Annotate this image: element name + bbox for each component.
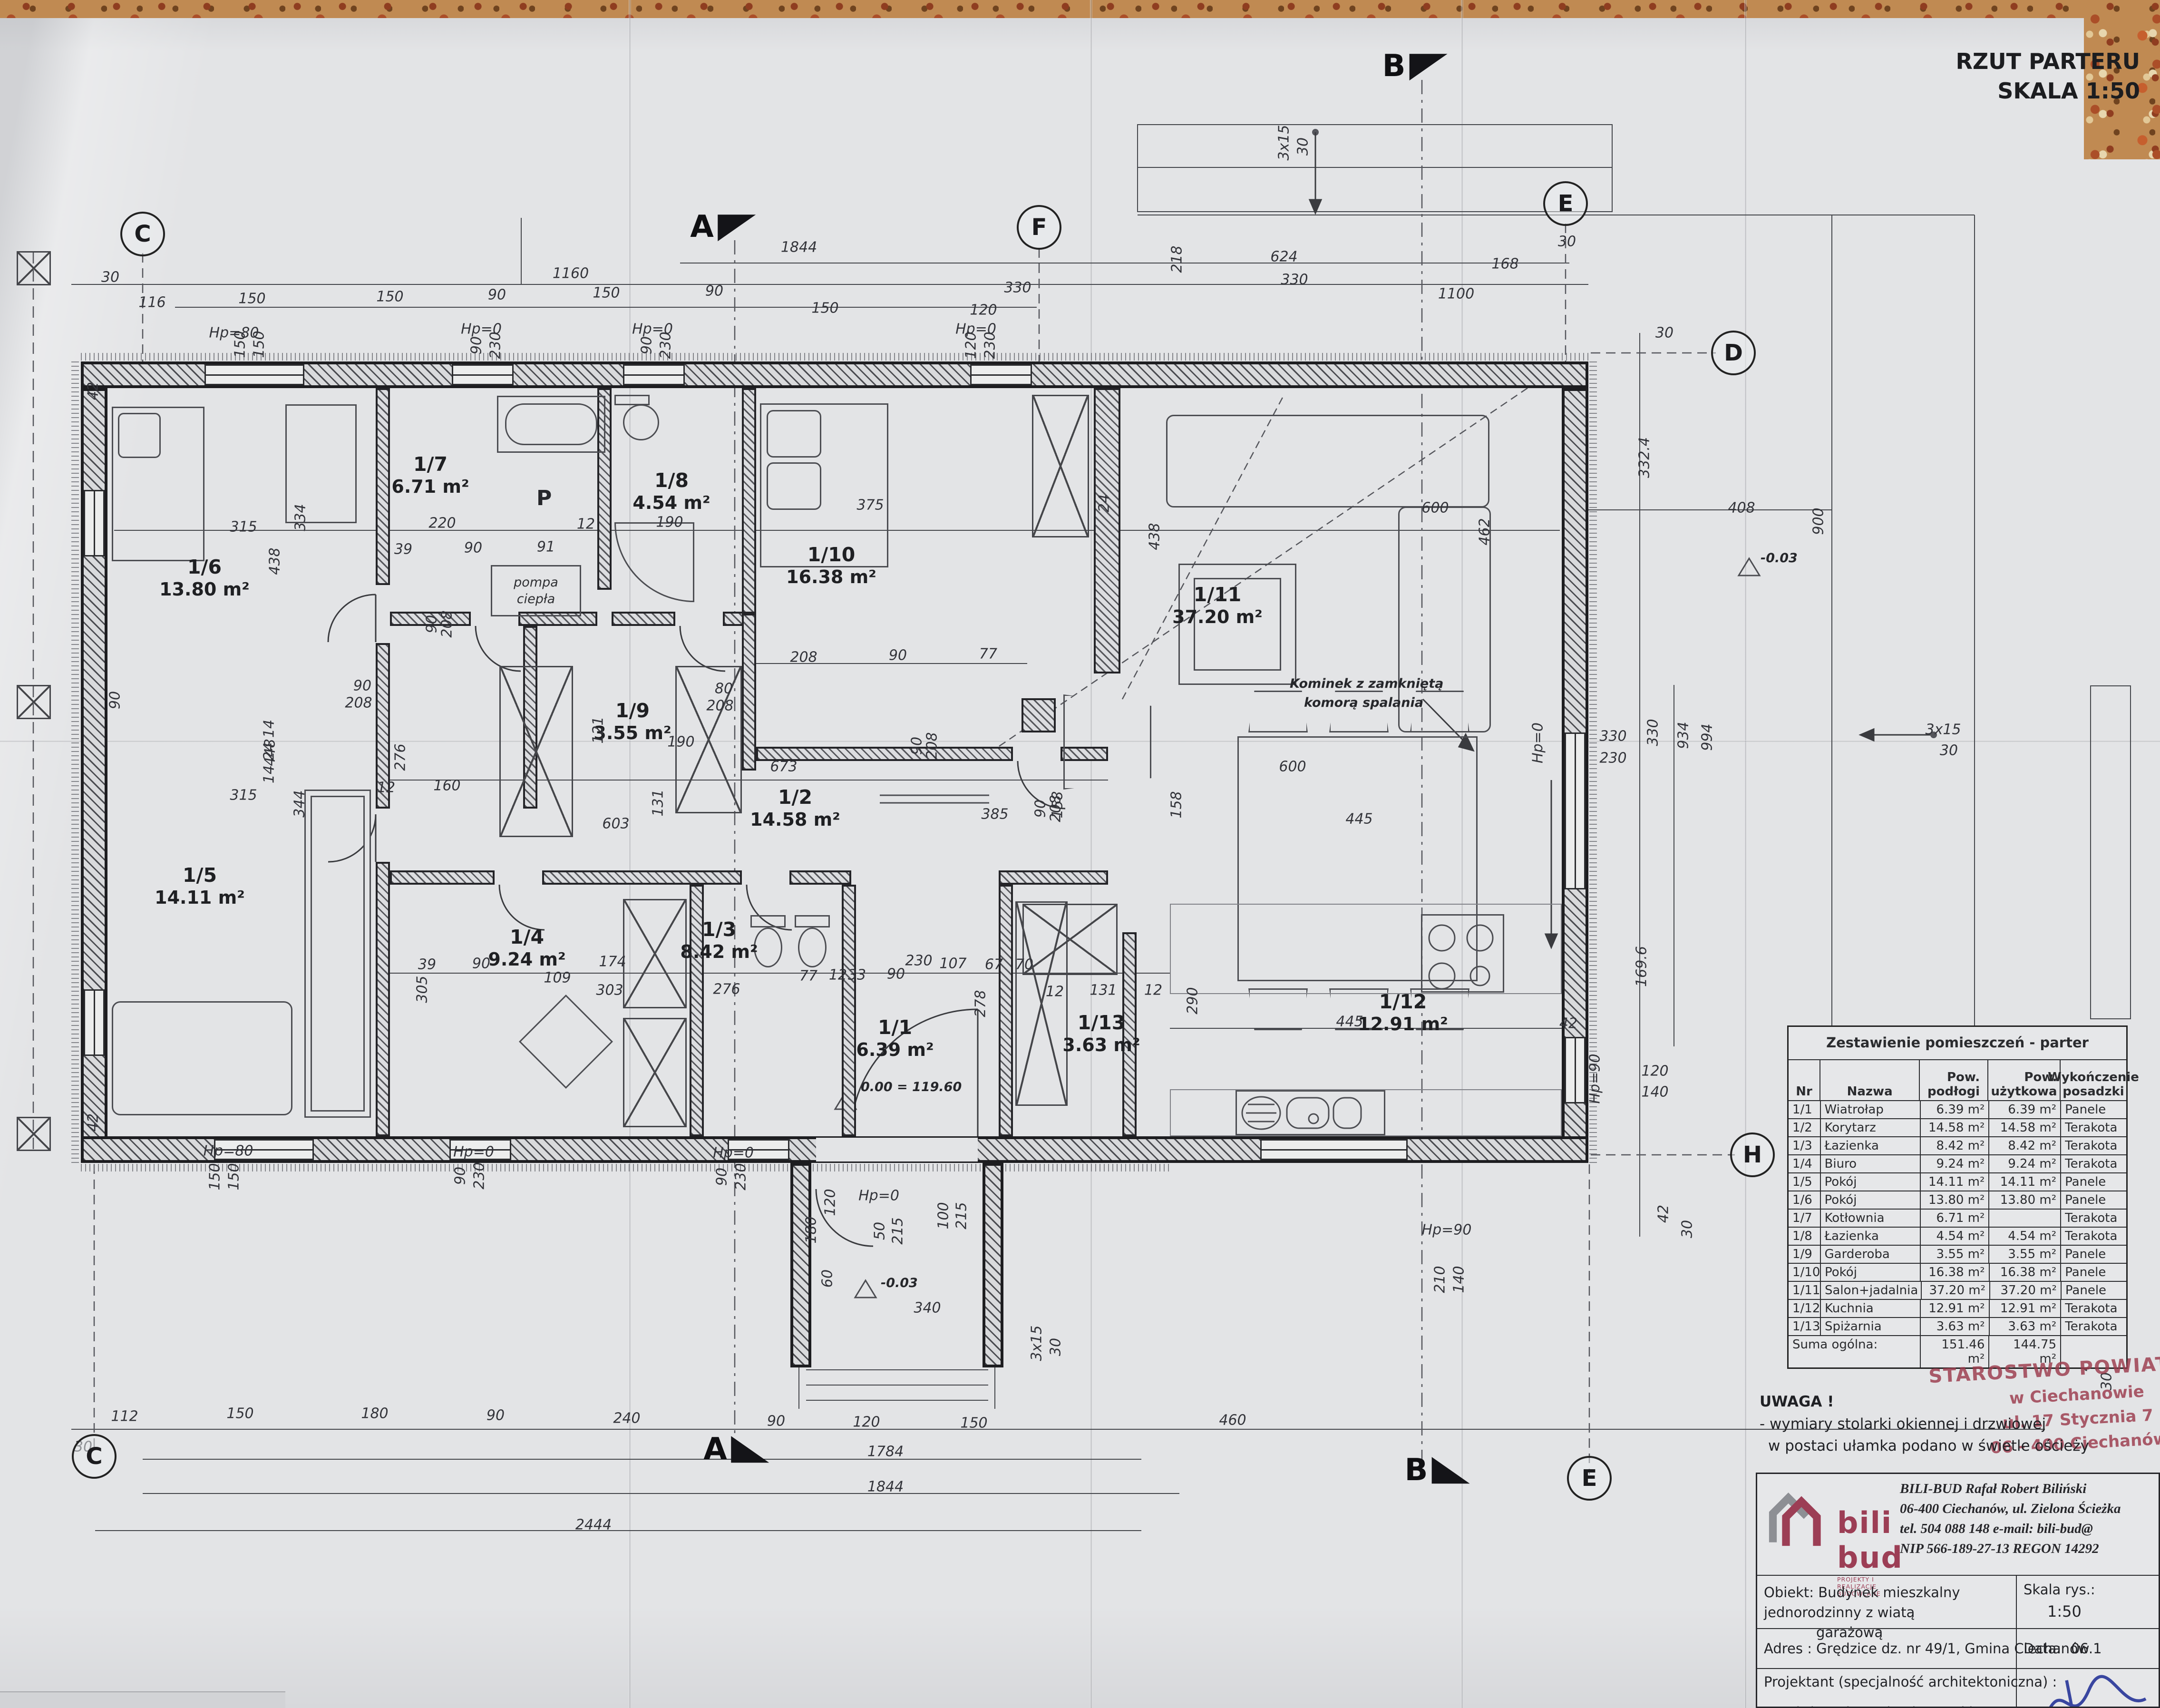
dim-label: 150 bbox=[232, 331, 249, 358]
dim-label: 190 bbox=[656, 514, 683, 531]
dim-label: 3x15 bbox=[1925, 722, 1961, 738]
dim-label: 50 bbox=[872, 1222, 888, 1240]
dim-label: 24 bbox=[261, 742, 278, 761]
company-line4: NIP 566-189-27-13 REGON 14292 bbox=[1900, 1539, 2160, 1559]
dim-label: 30 bbox=[1655, 325, 1674, 342]
projektant-label: Projektant (specjalność architektoniczna… bbox=[1764, 1674, 2057, 1690]
dim-label: 330 bbox=[1281, 272, 1308, 288]
cell-nr: 1/4 bbox=[1789, 1155, 1820, 1172]
dim-label: 2444 bbox=[575, 1517, 612, 1533]
uwaga-title: UWAGA ! bbox=[1760, 1391, 2089, 1413]
dim-label: 121 bbox=[590, 716, 607, 743]
room-number: 1/2 bbox=[750, 786, 840, 809]
axis-letter: E bbox=[1558, 190, 1574, 217]
dim-label: 168 bbox=[1491, 256, 1518, 273]
section-marker: B bbox=[1405, 1457, 1470, 1484]
company-info: BILI-BUD Rafał Robert Biliński 06-400 Ci… bbox=[1900, 1479, 2160, 1559]
room-number: 1/5 bbox=[155, 864, 245, 887]
dim-label: 14 bbox=[261, 765, 278, 783]
axis-marker: H bbox=[1730, 1132, 1775, 1177]
insulation-band bbox=[71, 361, 79, 1163]
window bbox=[452, 364, 514, 385]
dim-label: 33 bbox=[848, 967, 866, 984]
dim-label: 210 bbox=[1432, 1266, 1449, 1293]
tall-wardrobe bbox=[304, 790, 371, 1118]
dim-label: 230 bbox=[982, 332, 999, 359]
carport-post bbox=[17, 251, 51, 285]
dim-label: 90 bbox=[472, 956, 490, 972]
dim-label: 77 bbox=[799, 968, 817, 985]
room-number: 1/6 bbox=[159, 556, 250, 579]
dim-label: 215 bbox=[954, 1202, 970, 1229]
dim-label: 100 bbox=[935, 1202, 952, 1229]
partition bbox=[999, 870, 1108, 885]
dim-label: 90 bbox=[353, 678, 371, 694]
room-area: 13.80 m² bbox=[159, 579, 250, 601]
dim-label: 290 bbox=[1185, 987, 1201, 1014]
room-number: 1/12 bbox=[1358, 990, 1448, 1014]
dim-label: 624 bbox=[1270, 249, 1297, 265]
dim-label: 42 bbox=[1559, 1015, 1577, 1032]
dim-label: 42 bbox=[1655, 1205, 1672, 1223]
dim-label: 150 bbox=[376, 289, 403, 305]
cell-wykonczenie: Terakota bbox=[2060, 1137, 2126, 1154]
sofa bbox=[112, 1001, 292, 1115]
cell-nazwa: Łazienka bbox=[1820, 1137, 1920, 1154]
cell-pow-podlogi: 13.80 m² bbox=[1920, 1191, 1989, 1209]
dim-label: 208 bbox=[439, 610, 456, 637]
dim-label: 150 bbox=[207, 1163, 224, 1190]
dim-label: 120 bbox=[822, 1189, 839, 1216]
dim-label: 150 bbox=[238, 291, 265, 307]
projektant-row: Projektant (specjalność architektoniczna… bbox=[1757, 1668, 2160, 1708]
cell-nazwa: Salon+jadalnia bbox=[1820, 1282, 1921, 1299]
dim-label: 190 bbox=[667, 734, 694, 751]
cell-pow-podlogi: 6.39 m² bbox=[1920, 1101, 1989, 1118]
floor-plan-sheet: RZUT PARTERU SKALA 1:50 bbox=[0, 0, 2160, 1708]
pillow bbox=[767, 462, 821, 510]
uwaga-note: UWAGA ! - wymiary stolarki okiennej i dr… bbox=[1760, 1391, 2089, 1457]
section-marker: B bbox=[1382, 53, 1448, 80]
dim-label: 90 bbox=[1032, 800, 1049, 818]
window bbox=[84, 989, 105, 1056]
dim-label: 116 bbox=[138, 294, 165, 311]
level-mark: -0.03 bbox=[1761, 551, 1798, 566]
cell-wykonczenie: Panele bbox=[2060, 1101, 2126, 1118]
toilet-tank bbox=[795, 915, 830, 927]
dim-label: 600 bbox=[1279, 759, 1306, 775]
cell-nazwa: Łazienka bbox=[1820, 1228, 1920, 1245]
dim-label: 109 bbox=[544, 970, 571, 986]
uwaga-line2: w postaci ułamka podano w świetle oścież… bbox=[1760, 1435, 2089, 1457]
room-table-header: Nr Nazwa Pow. podłogi Pow. użytkowa Wyko… bbox=[1789, 1059, 2126, 1100]
insulation-band bbox=[81, 353, 1588, 361]
section-triangle-icon bbox=[1409, 54, 1447, 80]
dim-label: 12 bbox=[1144, 982, 1162, 999]
dim-label: 1100 bbox=[1438, 286, 1474, 303]
cell-nazwa: Garderoba bbox=[1820, 1246, 1920, 1263]
room-number: 1/1 bbox=[856, 1016, 934, 1039]
level-mark: -0.03 bbox=[881, 1276, 918, 1290]
window bbox=[970, 364, 1032, 385]
axis-marker: D bbox=[1711, 331, 1756, 375]
dim-label: 305 bbox=[414, 976, 431, 1003]
dim-label: 120 bbox=[853, 1414, 880, 1431]
room-number: 1/11 bbox=[1172, 583, 1263, 606]
dim-label: 460 bbox=[1219, 1412, 1246, 1429]
wardrobe bbox=[623, 899, 687, 1008]
axis-marker: E bbox=[1567, 1456, 1612, 1501]
dim-label: Hp=0 bbox=[453, 1144, 494, 1161]
dim-label: 120 bbox=[970, 302, 997, 319]
dim-label: 30 bbox=[1295, 137, 1312, 156]
dim-label: 1844 bbox=[781, 239, 817, 256]
cell-pow-podlogi: 37.20 m² bbox=[1921, 1282, 1989, 1299]
dim-label: 408 bbox=[1728, 500, 1755, 517]
cell-wykonczenie: Terakota bbox=[2060, 1228, 2126, 1245]
section-triangle-icon bbox=[1431, 1457, 1469, 1484]
dim-label: 3x15 bbox=[1029, 1325, 1045, 1361]
dim-label: 90 bbox=[889, 647, 907, 664]
cell-nr: 1/13 bbox=[1789, 1318, 1820, 1335]
chair bbox=[1248, 988, 1308, 1030]
cell-wykonczenie: Panele bbox=[2060, 1264, 2126, 1281]
dim-label: 208 bbox=[706, 698, 733, 714]
dim-label: 42 bbox=[85, 382, 102, 400]
room-area: 6.39 m² bbox=[856, 1039, 934, 1061]
dim-label: 90 bbox=[452, 1167, 469, 1185]
wall-north bbox=[81, 361, 1588, 388]
pantry-shelf bbox=[1022, 904, 1118, 975]
axis-letter: C bbox=[86, 1443, 102, 1470]
dim-label: Hp=0 bbox=[713, 1145, 754, 1161]
paper-crease bbox=[629, 0, 631, 1708]
room-area: 16.38 m² bbox=[786, 566, 876, 588]
heat-pump-box: pompa ciepła bbox=[491, 565, 581, 616]
dim-label: 215 bbox=[890, 1217, 906, 1244]
insulation-band bbox=[1589, 361, 1597, 1163]
dim-label: 150 bbox=[811, 300, 838, 317]
partition bbox=[542, 870, 742, 885]
dim-label: 230 bbox=[658, 332, 674, 359]
room-area: 12.91 m² bbox=[1358, 1014, 1448, 1035]
wardrobe bbox=[623, 1018, 687, 1127]
dim-label: 278 bbox=[973, 990, 989, 1017]
partition bbox=[742, 388, 756, 614]
room-number: 1/7 bbox=[391, 453, 469, 476]
skala-value: 1:50 bbox=[2047, 1602, 2082, 1620]
dim-label: 276 bbox=[392, 743, 409, 771]
shower bbox=[614, 522, 694, 602]
dim-label: 12 bbox=[1046, 984, 1064, 1000]
dim-label: 30 bbox=[1048, 1338, 1064, 1356]
dim-label: 208 bbox=[345, 695, 372, 712]
fireplace bbox=[1063, 694, 1151, 790]
cell-nazwa: Kuchnia bbox=[1820, 1300, 1920, 1317]
axis-letter: F bbox=[1031, 214, 1047, 241]
dim-label: 30 bbox=[1679, 1220, 1696, 1238]
room-area: 14.11 m² bbox=[155, 887, 245, 909]
company-logo: bili bud PROJEKTY I REALIZACJE BUDOWLANE bbox=[1766, 1483, 1899, 1568]
porch-wall-right bbox=[983, 1163, 1003, 1367]
company-line3: tel. 504 088 148 e-mail: bili-bud@ bbox=[1900, 1519, 2160, 1539]
axis-marker: C bbox=[120, 212, 165, 256]
dim-label: 218 bbox=[1169, 245, 1186, 273]
dim-label: 230 bbox=[471, 1162, 488, 1189]
drawing-title: RZUT PARTERU SKALA 1:50 bbox=[1855, 47, 2140, 106]
table-row: 1/3 Łazienka 8.42 m² 8.42 m² Terakota bbox=[1789, 1136, 2126, 1154]
table-row: 1/9 Garderoba 3.55 m² 3.55 m² Panele bbox=[1789, 1245, 2126, 1263]
cell-pow-podlogi: 12.91 m² bbox=[1920, 1300, 1989, 1317]
drawing-title-line1: RZUT PARTERU bbox=[1855, 47, 2140, 76]
uwaga-line1: - wymiary stolarki okiennej i drzwiowej bbox=[1760, 1413, 2089, 1435]
dim-label: 1160 bbox=[553, 265, 589, 282]
room-area: 37.20 m² bbox=[1172, 606, 1263, 628]
dim-label: 140 bbox=[1641, 1084, 1668, 1101]
cell-nr: 1/6 bbox=[1789, 1191, 1820, 1209]
room-number: 1/4 bbox=[488, 926, 565, 949]
room-label: 1/13 3.63 m² bbox=[1062, 1011, 1140, 1056]
room-label: 1/10 16.38 m² bbox=[786, 543, 876, 588]
room-area: 8.42 m² bbox=[680, 941, 758, 963]
table-row: 1/13 Spiżarnia 3.63 m² 3.63 m² Terakota bbox=[1789, 1317, 2126, 1335]
cell-nr: 1/12 bbox=[1789, 1300, 1820, 1317]
dim-label: 120 bbox=[963, 332, 980, 359]
dim-label: 445 bbox=[1345, 811, 1372, 828]
dim-label: 332.4 bbox=[1636, 437, 1653, 478]
col-header-pow-podlogi: Pow. podłogi bbox=[1919, 1060, 1987, 1100]
dim-label: 3x15 bbox=[1276, 125, 1293, 160]
dim-label: 230 bbox=[905, 953, 932, 969]
dim-label: 330 bbox=[1599, 728, 1626, 745]
col-header-wykonczenie: Wykończenie posadzki bbox=[2060, 1060, 2126, 1100]
dim-label: 276 bbox=[713, 981, 740, 998]
room-table-title: Zestawienie pomieszczeń - parter bbox=[1789, 1027, 2126, 1059]
dim-label: 24 bbox=[1096, 494, 1113, 512]
dim-label: 900 bbox=[1810, 508, 1827, 535]
dim-label: 150 bbox=[226, 1405, 253, 1422]
window bbox=[1260, 1139, 1408, 1160]
logo-text: bili bud bbox=[1837, 1505, 1903, 1575]
dim-label: 90 bbox=[107, 691, 124, 709]
partition bbox=[999, 885, 1013, 1136]
cell-pow-podlogi: 16.38 m² bbox=[1920, 1264, 1989, 1281]
cell-pow-uzytkowa: 4.54 m² bbox=[1988, 1228, 2060, 1245]
cell-pow-podlogi: 14.58 m² bbox=[1920, 1119, 1989, 1136]
section-marker: A bbox=[703, 1436, 769, 1464]
dim-label: 330 bbox=[1645, 719, 1662, 746]
table-row: 1/10 Pokój 16.38 m² 16.38 m² Panele bbox=[1789, 1263, 2126, 1281]
dim-label: 160 bbox=[433, 778, 460, 794]
dim-label: 603 bbox=[602, 816, 629, 832]
dim-label: 39 bbox=[418, 956, 436, 973]
dim-label: 39 bbox=[394, 541, 412, 558]
section-letter: A bbox=[690, 214, 714, 241]
pillow bbox=[767, 410, 821, 458]
dim-label: 150 bbox=[960, 1415, 987, 1432]
dim-label: 112 bbox=[111, 1408, 138, 1425]
partition bbox=[742, 614, 756, 771]
room-area: 3.63 m² bbox=[1062, 1035, 1140, 1056]
table-row: 1/12 Kuchnia 12.91 m² 12.91 m² Terakota bbox=[1789, 1299, 2126, 1317]
section-letter: A bbox=[703, 1436, 727, 1464]
dim-label: 12 bbox=[377, 780, 395, 796]
cell-nazwa: Pokój bbox=[1820, 1173, 1920, 1191]
dim-label: 90 bbox=[887, 966, 905, 983]
cell-nazwa: Pokój bbox=[1820, 1264, 1920, 1281]
dim-label: 1844 bbox=[867, 1479, 904, 1495]
dim-label: 150 bbox=[251, 331, 268, 358]
dim-label: 174 bbox=[599, 954, 626, 970]
sofa bbox=[1166, 415, 1489, 508]
level-mark: 0.00 = 119.60 bbox=[861, 1080, 962, 1094]
cell-nr: 1/7 bbox=[1789, 1210, 1820, 1227]
dim-label: 90 bbox=[639, 336, 655, 354]
dim-label: 344 bbox=[292, 790, 308, 817]
cell-pow-uzytkowa: 3.63 m² bbox=[1989, 1318, 2061, 1335]
cell-nr: 1/1 bbox=[1789, 1101, 1820, 1118]
cell-wykonczenie: Terakota bbox=[2060, 1300, 2126, 1317]
dim-label: 438 bbox=[267, 547, 283, 575]
dim-label: 30 bbox=[1558, 234, 1576, 250]
dim-label: 90 bbox=[464, 540, 482, 556]
stove bbox=[1421, 914, 1504, 993]
dim-label: 158 bbox=[1050, 791, 1066, 818]
cell-nr: 1/8 bbox=[1789, 1228, 1820, 1245]
fireplace-note-2: komorą spalania bbox=[1304, 695, 1423, 710]
cell-pow-podlogi: 9.24 m² bbox=[1920, 1155, 1989, 1172]
section-letter: B bbox=[1382, 53, 1406, 80]
dim-label: 934 bbox=[1675, 722, 1692, 749]
kitchen-sink-counter bbox=[1236, 1090, 1385, 1135]
room-label: 1/8 4.54 m² bbox=[632, 469, 710, 514]
dim-label: 438 bbox=[1147, 523, 1163, 550]
dim-label: 180 bbox=[803, 1216, 820, 1243]
dim-label: 131 bbox=[650, 789, 667, 816]
dim-label: 90 bbox=[424, 615, 440, 633]
cell-wykonczenie: Terakota bbox=[2060, 1318, 2126, 1335]
dim-label: 14 bbox=[261, 720, 278, 738]
terrace-sliding-door bbox=[1565, 732, 1586, 889]
partition bbox=[376, 388, 390, 585]
axis-letter: E bbox=[1582, 1465, 1597, 1492]
cell-nr: 1/10 bbox=[1789, 1264, 1820, 1281]
room-label: 1/2 14.58 m² bbox=[750, 786, 840, 831]
axis-marker: E bbox=[1543, 181, 1588, 226]
table-row: 1/6 Pokój 13.80 m² 13.80 m² Panele bbox=[1789, 1191, 2126, 1209]
cell-nr: 1/3 bbox=[1789, 1137, 1820, 1154]
company-line1: BILI-BUD Rafał Robert Biliński bbox=[1900, 1479, 2160, 1499]
cell-pow-uzytkowa: 9.24 m² bbox=[1988, 1155, 2060, 1172]
room-area: 4.54 m² bbox=[632, 492, 710, 514]
dim-label: 220 bbox=[428, 515, 456, 532]
entrance-door-opening bbox=[816, 1138, 978, 1161]
cell-wykonczenie: Terakota bbox=[2060, 1119, 2126, 1136]
heat-pump-label-1: pompa bbox=[514, 574, 558, 591]
dim-label: 230 bbox=[487, 332, 504, 359]
table-row: 1/8 Łazienka 4.54 m² 4.54 m² Terakota bbox=[1789, 1227, 2126, 1245]
cell-pow-podlogi: 8.42 m² bbox=[1920, 1137, 1989, 1154]
dim-label: 315 bbox=[230, 787, 257, 804]
dim-label: 90 bbox=[767, 1413, 785, 1430]
porch-wall-left bbox=[790, 1163, 811, 1367]
cell-wykonczenie: Panele bbox=[2060, 1191, 2126, 1209]
room-number: 1/13 bbox=[1062, 1011, 1140, 1035]
dim-label: 445 bbox=[1336, 1014, 1363, 1030]
dim-label: 12 bbox=[577, 516, 595, 533]
dim-label: 340 bbox=[914, 1300, 941, 1317]
axis-marker: C bbox=[72, 1434, 117, 1479]
cell-pow-podlogi: 3.55 m² bbox=[1920, 1246, 1989, 1263]
p-label: P bbox=[536, 486, 552, 510]
cell-nr: 1/2 bbox=[1789, 1119, 1820, 1136]
dim-label: Hp=90 bbox=[1422, 1222, 1472, 1239]
dim-label: 180 bbox=[361, 1405, 388, 1422]
table-row: 1/1 Wiatrołap 6.39 m² 6.39 m² Panele bbox=[1789, 1100, 2126, 1118]
cell-pow-uzytkowa: 12.91 m² bbox=[1989, 1300, 2061, 1317]
room-label: 1/6 13.80 m² bbox=[159, 556, 250, 601]
dim-label: Hp=90 bbox=[1587, 1054, 1604, 1104]
partition bbox=[376, 862, 390, 1136]
dim-label: 90 bbox=[468, 336, 485, 354]
room-label: 1/7 6.71 m² bbox=[391, 453, 469, 498]
room-table: Zestawienie pomieszczeń - parter Nr Nazw… bbox=[1787, 1025, 2128, 1369]
bathtub-inner bbox=[505, 403, 597, 445]
cell-wykonczenie: Panele bbox=[2060, 1173, 2126, 1191]
dim-label: 30 bbox=[1940, 742, 1958, 759]
cell-pow-uzytkowa: 8.42 m² bbox=[1988, 1137, 2060, 1154]
room-label: 1/3 8.42 m² bbox=[680, 918, 758, 963]
axis-marker: F bbox=[1017, 205, 1061, 250]
room-label: 1/5 14.11 m² bbox=[155, 864, 245, 909]
skala-label: Skala rys.: bbox=[2024, 1581, 2095, 1598]
dim-label: 208 bbox=[924, 732, 941, 759]
table-row: 1/11 Salon+jadalnia 37.20 m² 37.20 m² Pa… bbox=[1789, 1281, 2126, 1299]
room-area: 6.71 m² bbox=[391, 476, 469, 498]
company-line2: 06-400 Ciechanów, ul. Zielona Ścieżka bbox=[1900, 1499, 2160, 1519]
dim-label: 42 bbox=[85, 1113, 102, 1132]
dim-label: 169.6 bbox=[1634, 946, 1650, 987]
room-label: 1/12 12.91 m² bbox=[1358, 990, 1448, 1035]
dim-label: 230 bbox=[733, 1163, 749, 1190]
dim-label: 90 bbox=[714, 1168, 730, 1186]
cell-pow-podlogi: 3.63 m² bbox=[1920, 1318, 1989, 1335]
tablecloth-fabric-top bbox=[0, 0, 2160, 18]
room-number: 1/10 bbox=[786, 543, 876, 566]
dim-label: 67 bbox=[985, 956, 1003, 973]
cell-nazwa: Korytarz bbox=[1820, 1119, 1920, 1136]
room-number: 1/3 bbox=[680, 918, 758, 941]
room-area: 14.58 m² bbox=[750, 809, 840, 831]
dim-label: 150 bbox=[593, 285, 620, 302]
cell-pow-podlogi: 14.11 m² bbox=[1920, 1173, 1989, 1191]
paper-edge bbox=[0, 1691, 285, 1708]
wardrobe bbox=[1032, 395, 1089, 537]
logo-house-icon bbox=[1766, 1483, 1837, 1549]
cell-pow-uzytkowa: 6.39 m² bbox=[1988, 1101, 2060, 1118]
dim-label: 91 bbox=[537, 539, 555, 556]
section-marker: A bbox=[690, 214, 756, 241]
paper-crease bbox=[1744, 0, 1747, 1708]
dim-label: 80 bbox=[715, 681, 733, 697]
dim-label: 90 bbox=[705, 283, 723, 300]
cell-pow-uzytkowa: 37.20 m² bbox=[1989, 1282, 2061, 1299]
cell-pow-uzytkowa: 3.55 m² bbox=[1988, 1246, 2060, 1263]
fireplace-note-1: Kominek z zamkniętą bbox=[1290, 676, 1443, 691]
cell-wykonczenie: Terakota bbox=[2060, 1210, 2126, 1227]
col-header-nazwa: Nazwa bbox=[1819, 1060, 1919, 1100]
dim-label: 334 bbox=[292, 504, 309, 531]
